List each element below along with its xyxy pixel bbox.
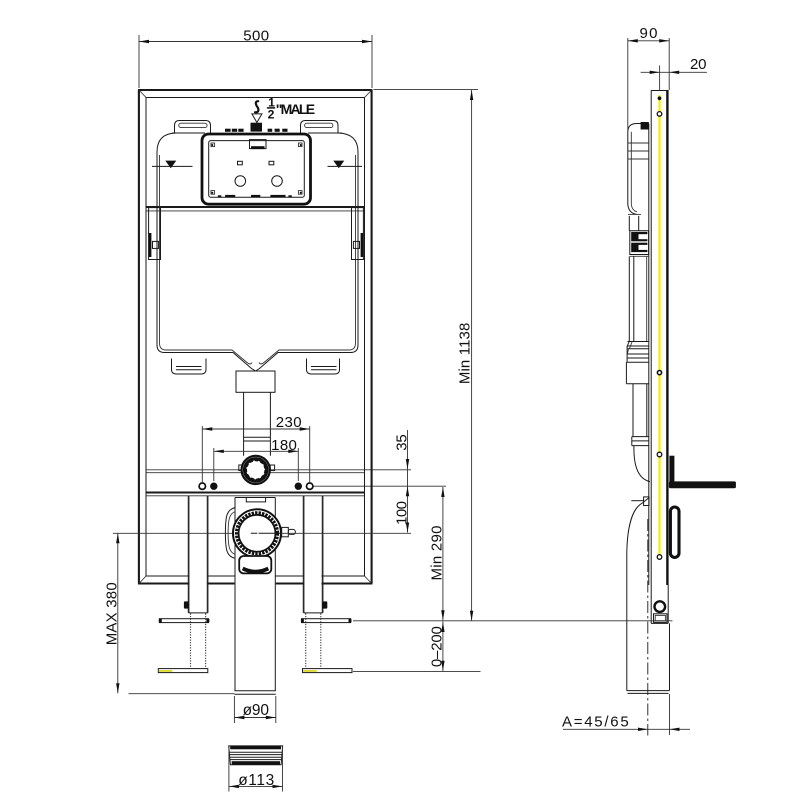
svg-text:Min 1138: Min 1138 [457,323,474,384]
svg-text:35: 35 [393,434,410,451]
svg-text:"MALE: "MALE [276,101,315,117]
svg-text:500: 500 [243,28,269,45]
svg-text:ø90: ø90 [243,702,270,719]
svg-text:230: 230 [276,414,302,431]
svg-text:Min 290: Min 290 [429,526,446,581]
svg-text:MAX 380: MAX 380 [103,582,120,645]
svg-text:2: 2 [268,108,275,122]
svg-text:100: 100 [393,501,410,525]
svg-text:90: 90 [640,25,658,42]
svg-text:180: 180 [271,437,297,454]
svg-text:0–200: 0–200 [429,626,446,667]
svg-text:20: 20 [690,56,707,73]
svg-text:ø113: ø113 [238,772,274,789]
